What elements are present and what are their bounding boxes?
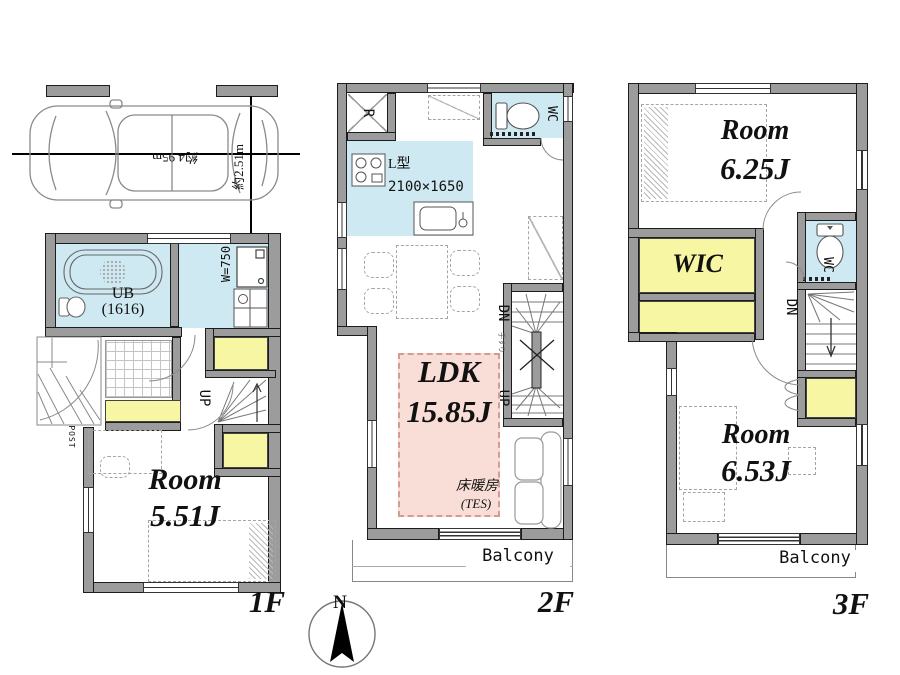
balcony-label: Balcony <box>466 548 570 570</box>
balcony-label: Balcony <box>763 550 867 572</box>
room-name-label: Room <box>696 420 816 452</box>
floor2-label: 2F <box>510 586 574 622</box>
parking-width-label: 約4.95m <box>135 148 215 164</box>
room-size-label: 5.51J <box>105 500 265 540</box>
compass-north-label: N <box>326 593 354 613</box>
floor3-label: 3F <box>805 588 869 624</box>
door-swing-arcs <box>337 83 573 540</box>
room-size-label: 6.53J <box>691 455 821 493</box>
room-name-label: Room <box>110 464 260 500</box>
parking-depth-label: 約2.51m <box>232 127 248 207</box>
furniture <box>683 492 725 522</box>
floor-plan-canvas: 約4.95m 約2.51m UB (1616) <box>0 0 900 675</box>
floor1-label: 1F <box>225 586 285 622</box>
